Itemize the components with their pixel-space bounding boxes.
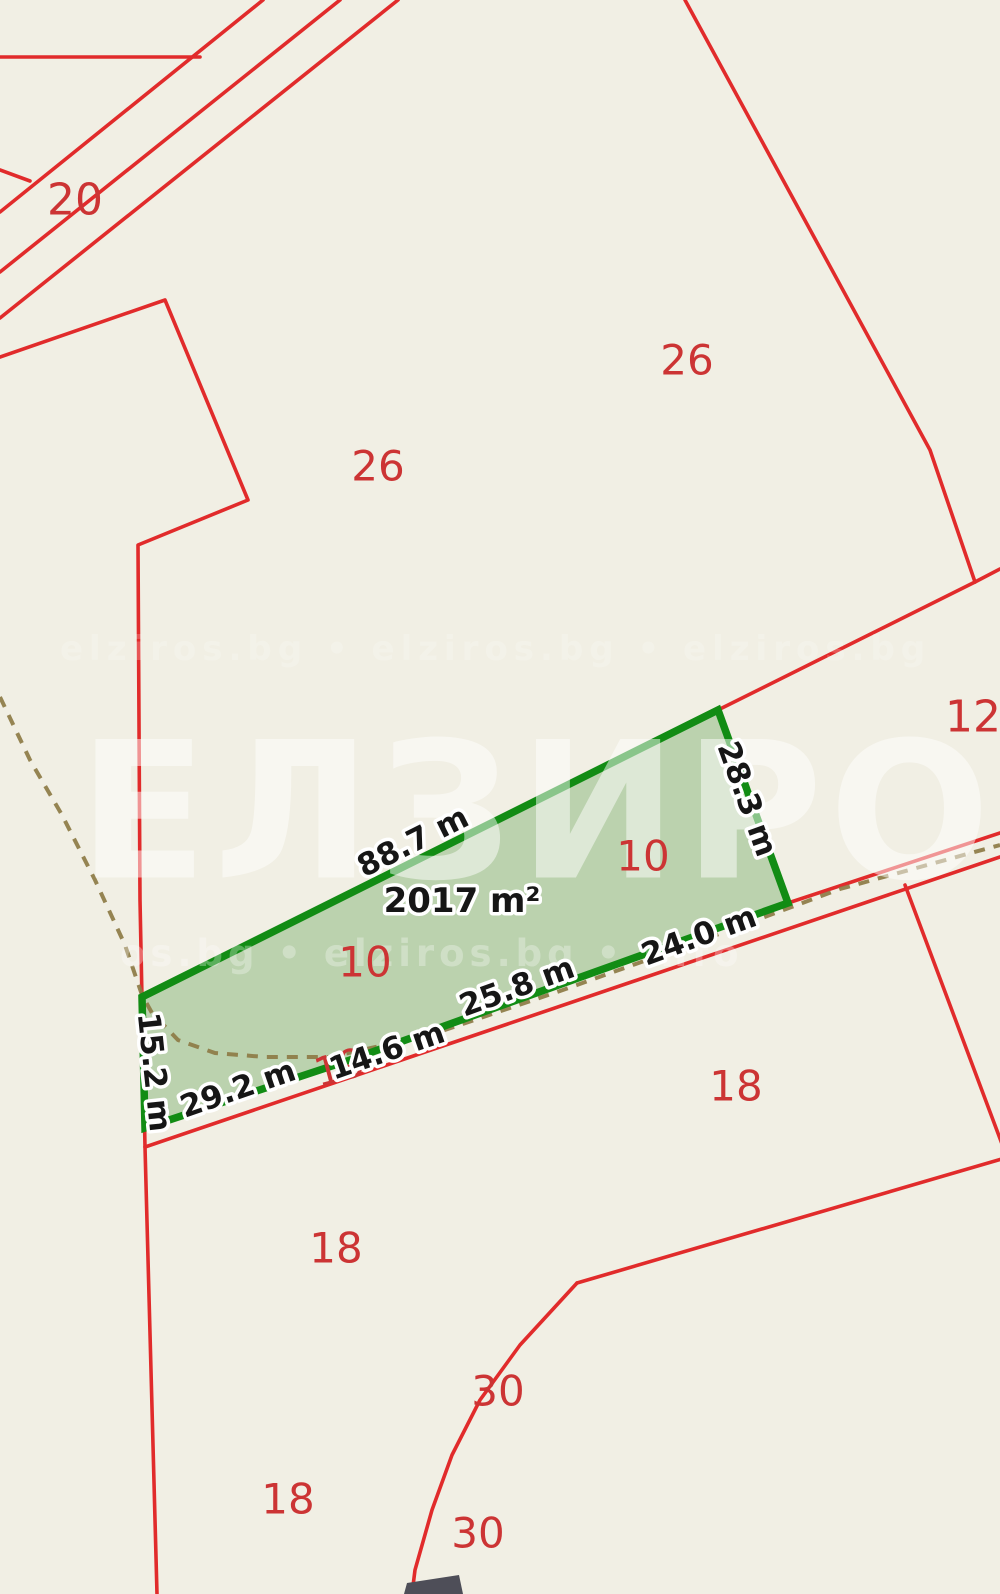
map-svg: elziros.bg • elziros.bg • elziros.bgos.b…	[0, 0, 1000, 1594]
parcel-number-label: 18	[309, 1224, 362, 1273]
cadastral-map[interactable]: elziros.bg • elziros.bg • elziros.bgos.b…	[0, 0, 1000, 1594]
parcel-number-label: 10	[338, 938, 391, 987]
parcel-number-label: 12	[945, 692, 1000, 743]
parcel-number-label: 26	[351, 442, 404, 491]
parcel-number-label: 30	[451, 1509, 504, 1558]
watermark-row: elziros.bg • elziros.bg • elziros.bg	[60, 629, 931, 669]
parcel-number-label: 26	[660, 336, 713, 385]
parcel-number-label: 18	[261, 1475, 314, 1524]
parcel-area-label: 2017 m²	[384, 881, 541, 921]
parcel-number-label: 30	[471, 1367, 524, 1416]
parcel-number-label: 10	[616, 832, 669, 881]
parcel-number-label: 18	[709, 1062, 762, 1111]
parcel-number-label: 20	[47, 175, 103, 226]
